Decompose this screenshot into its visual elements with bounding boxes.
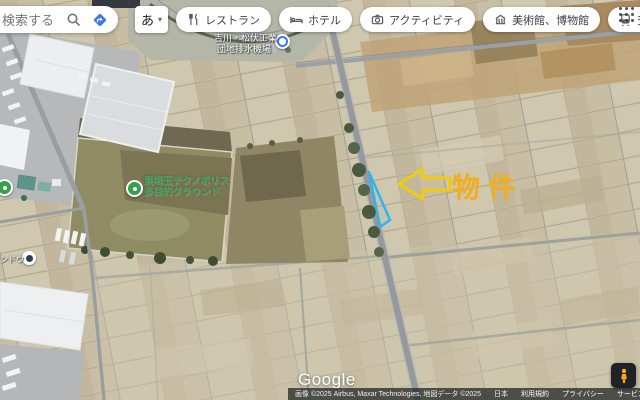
chip-hotels[interactable]: ホテル [279, 7, 352, 32]
terms-link[interactable]: 利用規約 [521, 389, 549, 399]
white-dot-icon [133, 187, 137, 191]
search-box[interactable]: 検索する [0, 6, 118, 33]
blue-ring-icon [277, 36, 288, 47]
pegman-icon [618, 368, 630, 384]
business-label-partial[interactable]: ンドウ [0, 254, 24, 265]
attribution-bar: 画像 ©2025 Airbus, Maxar Technologies, 地図デ… [288, 388, 640, 400]
ground-label[interactable]: 東埼玉テクノポリス 多目的グラウンド [144, 176, 229, 198]
ground-marker[interactable] [126, 180, 143, 197]
chip-museums[interactable]: 美術館、博物館 [483, 7, 600, 32]
imagery-attribution: 画像 ©2025 Airbus, Maxar Technologies, 地図デ… [295, 389, 481, 399]
chevron-down-icon: ▾ [158, 15, 162, 24]
pump-station-label[interactable]: 吉川・松伏工業 団地排水機場 [214, 33, 274, 55]
search-icon[interactable] [66, 12, 82, 28]
activity-camera-icon [371, 13, 384, 26]
region-label: 日本 [494, 389, 508, 399]
category-filter-row: レストラン ホテル アクティビティ 美術館、博物館 交通機関 [176, 7, 640, 32]
ime-label: あ [141, 10, 154, 29]
navy-dot-icon [26, 255, 33, 262]
ime-language-button[interactable]: あ ▾ [135, 6, 168, 33]
google-apps-grid-icon[interactable] [619, 7, 635, 23]
google-logo: Google [298, 370, 356, 390]
satellite-map[interactable] [0, 0, 640, 400]
pegman-button[interactable] [611, 363, 636, 388]
property-annotation-label: 物件 [452, 166, 524, 206]
business-marker[interactable] [22, 251, 36, 265]
search-input[interactable]: 検索する [2, 10, 66, 29]
pump-station-marker[interactable] [275, 34, 290, 49]
chip-activities[interactable]: アクティビティ [360, 7, 475, 32]
directions-icon[interactable] [92, 12, 108, 28]
restaurant-icon [187, 13, 200, 26]
museum-icon [494, 13, 507, 26]
privacy-link[interactable]: プライバシー [562, 389, 604, 399]
hotel-icon [290, 13, 303, 26]
chip-restaurants[interactable]: レストラン [176, 7, 271, 32]
feedback-link[interactable]: サービスに関するフィードバックを送信 [617, 389, 640, 399]
